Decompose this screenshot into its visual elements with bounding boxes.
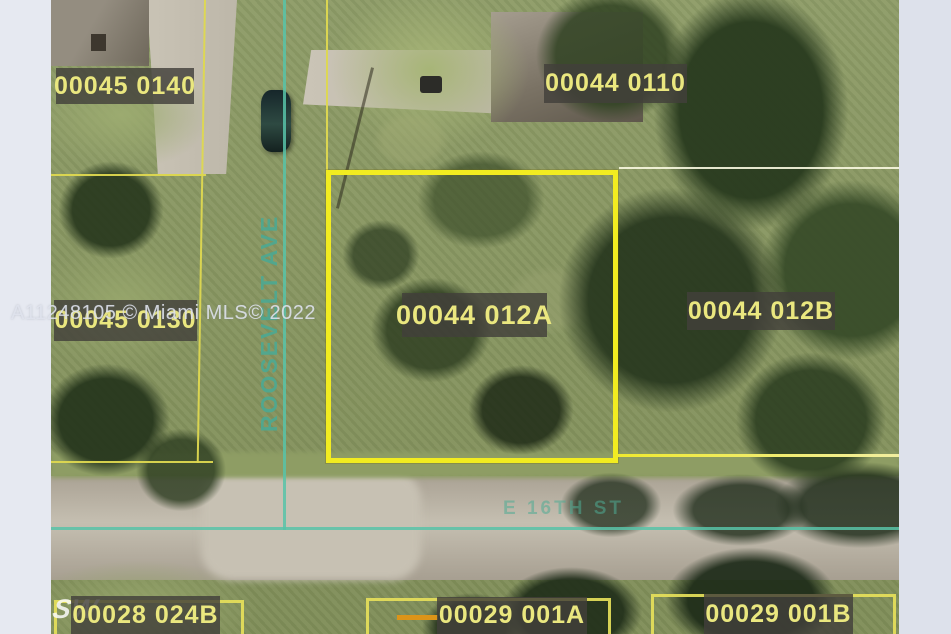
street-centerline-horizontal — [51, 527, 899, 530]
parcel-line-left-bottom — [51, 461, 213, 463]
parcel-label-00044-012B: 00044 012B — [687, 292, 835, 330]
parcel-label-00045-0140: 00045 0140 — [56, 68, 194, 104]
parcel-line-012B-top — [619, 167, 899, 169]
parcel-label-00028-024B: 00028 024B — [71, 596, 220, 634]
vehicle-on-road — [261, 90, 291, 152]
parcel-line-012B-bottom — [616, 454, 899, 457]
parcel-label-00044-012A: 00044 012A — [402, 293, 547, 337]
parcel-label-00029-001B: 00029 001B — [704, 594, 853, 634]
parcel-label-00044-0110: 00044 0110 — [544, 64, 687, 103]
mls-watermark: A11248105 © Miami MLS© 2022 — [11, 302, 316, 325]
mls-aerial-map-screenshot: ROOSEVELT AVE E 16TH ST SW 00045 0140 00… — [0, 0, 951, 634]
parcel-line-left-divider — [51, 174, 206, 176]
street-label-cross-street: E 16TH ST — [503, 498, 624, 520]
parcel-line-0110-left — [326, 0, 328, 171]
orange-line-segment — [397, 615, 438, 620]
parcel-label-00029-001A: 00029 001A — [437, 597, 587, 634]
